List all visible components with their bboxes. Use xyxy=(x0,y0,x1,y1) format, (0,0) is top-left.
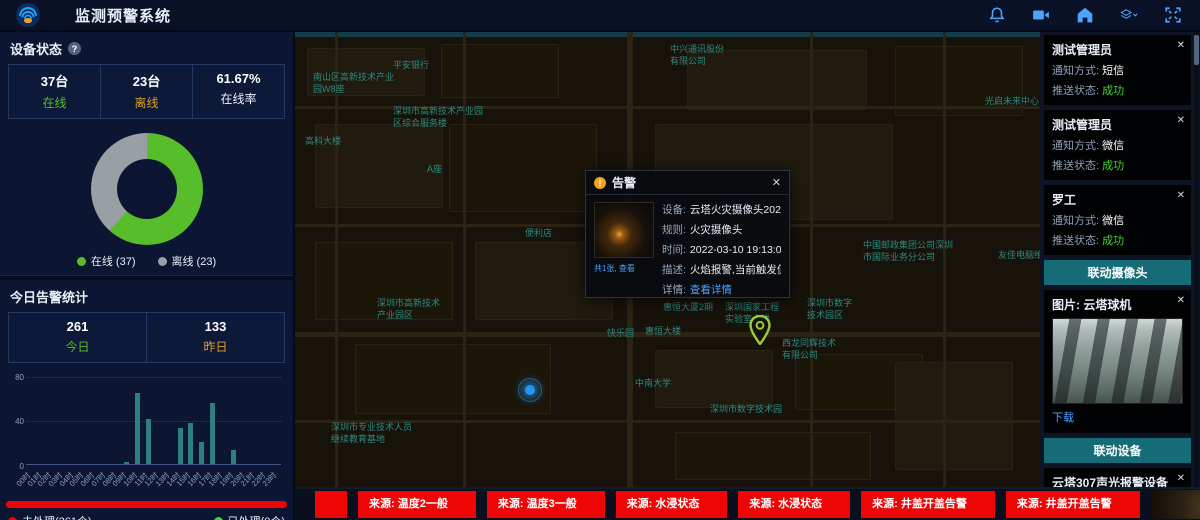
camera-snapshot-image[interactable] xyxy=(1052,318,1183,404)
legend-dot-offline xyxy=(158,257,167,266)
legend-dot-online xyxy=(77,257,86,266)
close-icon[interactable]: ✕ xyxy=(1177,40,1185,51)
map-label: 平安银行 xyxy=(393,60,429,72)
layers-icon[interactable] xyxy=(1120,6,1138,24)
stat-today: 261 今日 xyxy=(9,313,146,362)
top-header: 监测预警系统 xyxy=(0,0,1200,32)
city-map[interactable]: 中兴通讯股份有限公司平安银行南山区高新技术产业园W8座深圳市高新技术产业园区综合… xyxy=(295,32,1040,487)
popup-row: 规则:火灾摄像头 xyxy=(662,222,781,237)
camera-card-title: 图片: 云塔球机 xyxy=(1052,296,1183,313)
popup-row-value: 2022-03-10 19:13:07 xyxy=(690,244,781,256)
scrollbar-thumb[interactable] xyxy=(1194,35,1199,65)
alert-icon: ! xyxy=(594,177,606,189)
map-label: 友佳电脑维修 xyxy=(998,250,1040,262)
close-icon[interactable]: ✕ xyxy=(1177,190,1185,201)
popup-row: 详情:查看详情 xyxy=(662,282,781,297)
map-label: 高科大楼 xyxy=(305,136,341,148)
device-status-stats: 37台 在线 23台 离线 61.67% 在线率 xyxy=(8,64,285,119)
progress-legend: 未处理(261个) 已处理(0个) xyxy=(8,513,285,520)
popup-row-value: 火灾摄像头 xyxy=(690,224,743,236)
donut-legend: 在线 (37) 离线 (23) xyxy=(0,253,293,269)
ticker-alert[interactable]: 来源: 井盖开盖告警 xyxy=(861,491,995,518)
popup-row-value: 云塔火灾摄像头202 xyxy=(690,204,781,216)
map-label: 中国邮政集团公司深圳市国际业务分公司 xyxy=(863,240,959,263)
stat-offline: 23台 离线 xyxy=(100,65,192,118)
notification-method: 通知方式: 短信 xyxy=(1052,62,1183,78)
view-detail-link[interactable]: 查看详情 xyxy=(690,284,732,296)
ticker-alert[interactable]: 来源: 水浸状态 xyxy=(616,491,728,518)
bell-icon[interactable] xyxy=(988,6,1006,24)
close-icon[interactable]: ✕ xyxy=(772,176,781,189)
right-sidebar: ✕测试管理员通知方式: 短信推送状态: 成功✕测试管理员通知方式: 微信推送状态… xyxy=(1040,32,1200,520)
linked-cameras-header[interactable]: 联动摄像头 xyxy=(1044,260,1191,285)
bar-15时 xyxy=(188,423,193,464)
bar-09时 xyxy=(124,462,129,464)
popup-row: 时间:2022-03-10 19:13:07 xyxy=(662,242,781,257)
left-sidebar: 设备状态 ? 37台 在线 23台 离线 61.67% 在线率 在线 (37) … xyxy=(0,32,295,520)
fullscreen-icon[interactable] xyxy=(1164,6,1182,24)
notification-recipient: 罗工 xyxy=(1052,191,1183,208)
notification-status: 推送状态: 成功 xyxy=(1052,232,1183,248)
camera-card: ✕ 图片: 云塔球机 下载 xyxy=(1044,290,1191,433)
stat-online-rate: 61.67% 在线率 xyxy=(192,65,284,118)
fire-snapshot-image[interactable] xyxy=(594,202,654,258)
bar-16时 xyxy=(199,442,204,464)
map-label: 南山区高新技术产业园W8座 xyxy=(313,72,395,95)
device-status-title: 设备状态 xyxy=(10,39,62,58)
popup-row: 设备:云塔火灾摄像头202 xyxy=(662,202,781,217)
notification-card: ✕测试管理员通知方式: 微信推送状态: 成功 xyxy=(1044,110,1191,180)
download-link[interactable]: 下载 xyxy=(1052,409,1074,425)
page-title: 监测预警系统 xyxy=(75,5,171,26)
alert-popup: ! 告警 ✕ 共1张, 查看 设备:云塔火灾摄像头202规则:火灾摄像头时间:2… xyxy=(585,170,790,298)
map-label: 深圳市数字技术园 xyxy=(710,404,802,416)
map-label: 深圳市高新技术产业园区 xyxy=(377,298,441,321)
alert-location-pin-icon[interactable] xyxy=(748,315,772,345)
view-photos-link[interactable]: 共1张, 查看 xyxy=(594,263,654,274)
notification-method: 通知方式: 微信 xyxy=(1052,137,1183,153)
popup-row: 描述:火焰报警,当前触发值为 xyxy=(662,262,781,277)
video-camera-icon[interactable] xyxy=(1032,6,1050,24)
map-label: 快乐园 xyxy=(607,328,634,340)
device-location-dot[interactable] xyxy=(525,385,535,395)
linked-devices-header[interactable]: 联动设备 xyxy=(1044,438,1191,463)
map-label: 光启未来中心 xyxy=(985,96,1040,108)
alert-snapshot: 共1张, 查看 xyxy=(594,202,654,302)
unhandled-progress-bar xyxy=(6,501,287,508)
map-label: A座 xyxy=(427,164,442,176)
ticker-alert-partial[interactable] xyxy=(315,491,347,518)
notification-status: 推送状态: 成功 xyxy=(1052,82,1183,98)
notification-status: 推送状态: 成功 xyxy=(1052,157,1183,173)
ticker-snapshot-image[interactable] xyxy=(1151,490,1200,519)
stat-online: 37台 在线 xyxy=(9,65,100,118)
ticker-alert[interactable]: 来源: 井盖开盖告警 xyxy=(1006,491,1140,518)
map-label: 中南大学 xyxy=(635,378,671,390)
close-icon[interactable]: ✕ xyxy=(1177,473,1185,484)
bar-14时 xyxy=(178,428,183,464)
stat-yesterday: 133 昨日 xyxy=(146,313,284,362)
notification-recipient: 测试管理员 xyxy=(1052,41,1183,58)
close-icon[interactable]: ✕ xyxy=(1177,115,1185,126)
notification-card: ✕罗工通知方式: 微信推送状态: 成功 xyxy=(1044,185,1191,255)
ticker-alert[interactable]: 来源: 温度2一般 xyxy=(358,491,476,518)
legend-dot-handled xyxy=(214,517,223,520)
map-label: 深圳市专业技术人员继续教育基地 xyxy=(331,422,413,445)
bar-19时 xyxy=(231,450,236,464)
map-label: 深圳市高新技术产业园区综合服务楼 xyxy=(393,106,483,129)
app-logo-icon xyxy=(16,3,40,27)
today-alerts-stats: 261 今日 133 昨日 xyxy=(8,312,285,363)
alert-popup-title: 告警 xyxy=(612,174,636,191)
popup-row-label: 时间: xyxy=(662,244,686,256)
chevron-down-icon xyxy=(1133,14,1137,16)
map-label: 便利店 xyxy=(525,228,552,240)
notification-method: 通知方式: 微信 xyxy=(1052,212,1183,228)
popup-row-label: 规则: xyxy=(662,224,686,236)
popup-row-value: 火焰报警,当前触发值为 xyxy=(690,264,781,276)
map-label: 中兴通讯股份有限公司 xyxy=(670,44,732,67)
ticker-alert[interactable]: 来源: 水浸状态 xyxy=(738,491,850,518)
notification-card: ✕测试管理员通知方式: 短信推送状态: 成功 xyxy=(1044,35,1191,105)
map-label: 西龙同辉技术有限公司 xyxy=(782,338,836,361)
scrollbar[interactable] xyxy=(1194,32,1199,520)
bar-10时 xyxy=(135,393,140,464)
popup-row-label: 设备: xyxy=(662,204,686,216)
map-road xyxy=(295,32,1040,37)
map-label: 深圳市数字技术园区 xyxy=(807,298,859,321)
alert-ticker: 来源: 温度2一般来源: 温度3一般来源: 水浸状态来源: 水浸状态来源: 井盖… xyxy=(295,487,1200,520)
popup-row-label: 描述: xyxy=(662,264,686,276)
bar-17时 xyxy=(210,403,215,464)
today-alerts-title: 今日告警统计 xyxy=(10,287,88,306)
map-label: 惠恒大楼 xyxy=(645,326,681,338)
device-status-donut-chart xyxy=(91,133,203,245)
bar-11时 xyxy=(146,419,151,464)
legend-dot-unhandled xyxy=(8,517,17,520)
help-icon[interactable]: ? xyxy=(68,42,81,55)
hourly-alerts-bar-chart: 80 40 0 00时01时02时03时04时05时06时07时08时09时10… xyxy=(8,369,285,493)
popup-row-label: 详情: xyxy=(662,284,686,296)
close-icon[interactable]: ✕ xyxy=(1177,295,1185,306)
notification-recipient: 测试管理员 xyxy=(1052,116,1183,133)
home-icon[interactable] xyxy=(1076,6,1094,24)
ticker-alert[interactable]: 来源: 温度3一般 xyxy=(487,491,605,518)
